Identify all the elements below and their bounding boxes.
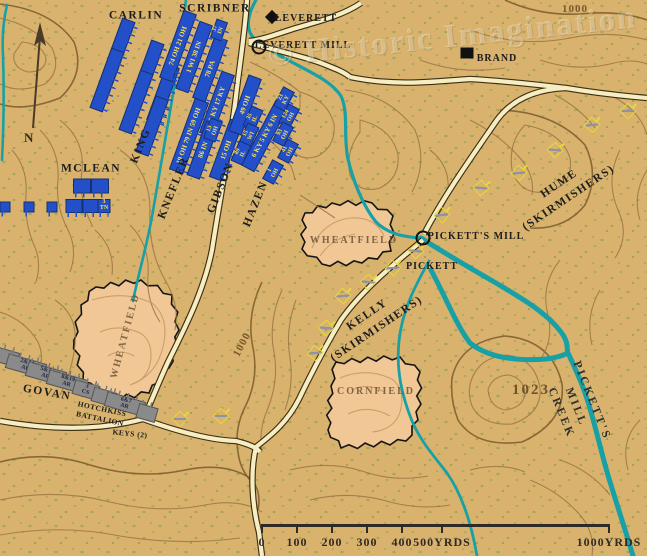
map-label-scribner: SCRIBNER xyxy=(179,1,250,18)
scale-bar xyxy=(262,524,609,527)
scale-tick xyxy=(441,524,443,533)
scale-tick xyxy=(608,524,610,533)
unit-label: 3 TN xyxy=(100,200,108,211)
scale-tick xyxy=(296,524,298,533)
unit-3-tn: 3 TN xyxy=(98,199,111,213)
scale-tick xyxy=(366,524,368,533)
map-label-leverett: LEVERETT xyxy=(275,12,337,27)
unit-bar xyxy=(0,202,11,213)
map-label-brand: BRAND xyxy=(477,52,518,67)
brand-building xyxy=(461,48,474,59)
unit-bar xyxy=(91,179,109,194)
map-label-pickett: PICKETT xyxy=(406,260,458,275)
unit-bar xyxy=(47,202,58,213)
scale-tick xyxy=(331,524,333,533)
scale-tick-label: 500YRDS xyxy=(413,535,471,550)
unit-bar xyxy=(66,199,83,213)
scale-tick-label: 300 xyxy=(357,535,378,550)
map-label-carlin: CARLIN xyxy=(109,8,163,25)
unit-label: 41 OH xyxy=(281,144,295,158)
scale-tick xyxy=(261,524,263,533)
battle-map: © Historic Imagination N 74 OH 21 OH1 WI… xyxy=(0,0,647,556)
unit-bar xyxy=(24,202,35,213)
map-label-leverett-mill: LEVERETT MILL xyxy=(255,39,351,54)
field-cornfield xyxy=(327,356,422,449)
scale-tick-label: 400 xyxy=(392,535,413,550)
scale-tick xyxy=(401,524,403,533)
map-label-wheatfield: WHEATFIELD xyxy=(310,234,398,249)
unit-label: 86 IN xyxy=(197,141,209,159)
scale-tick-label: 1000YRDS xyxy=(577,535,642,550)
compass-north-label: N xyxy=(24,130,33,146)
map-label-pickett-s-mill: PICKETT'S MILL xyxy=(428,230,525,245)
scale-tick-label: 0 xyxy=(259,535,266,550)
scale-tick-label: 200 xyxy=(322,535,343,550)
unit-bar xyxy=(73,179,91,194)
unit-label: 124 OH xyxy=(282,109,296,123)
unit-label: 1 OH xyxy=(266,165,280,179)
unit-label: 3 CS xyxy=(81,383,92,396)
map-label-1023: 1023 xyxy=(512,380,550,402)
map-label-cornfield: CORNFIELD xyxy=(337,385,415,400)
unit-label: 37 IN xyxy=(213,25,226,35)
map-label-1000: 1000 xyxy=(562,2,588,18)
unit-label: 13 OH xyxy=(206,124,220,137)
unit-label: 78 PA xyxy=(204,60,217,79)
scale-tick-label: 100 xyxy=(287,535,308,550)
map-label-mclean: MCLEAN xyxy=(61,161,121,178)
unit-label: 35 IL xyxy=(247,113,260,123)
